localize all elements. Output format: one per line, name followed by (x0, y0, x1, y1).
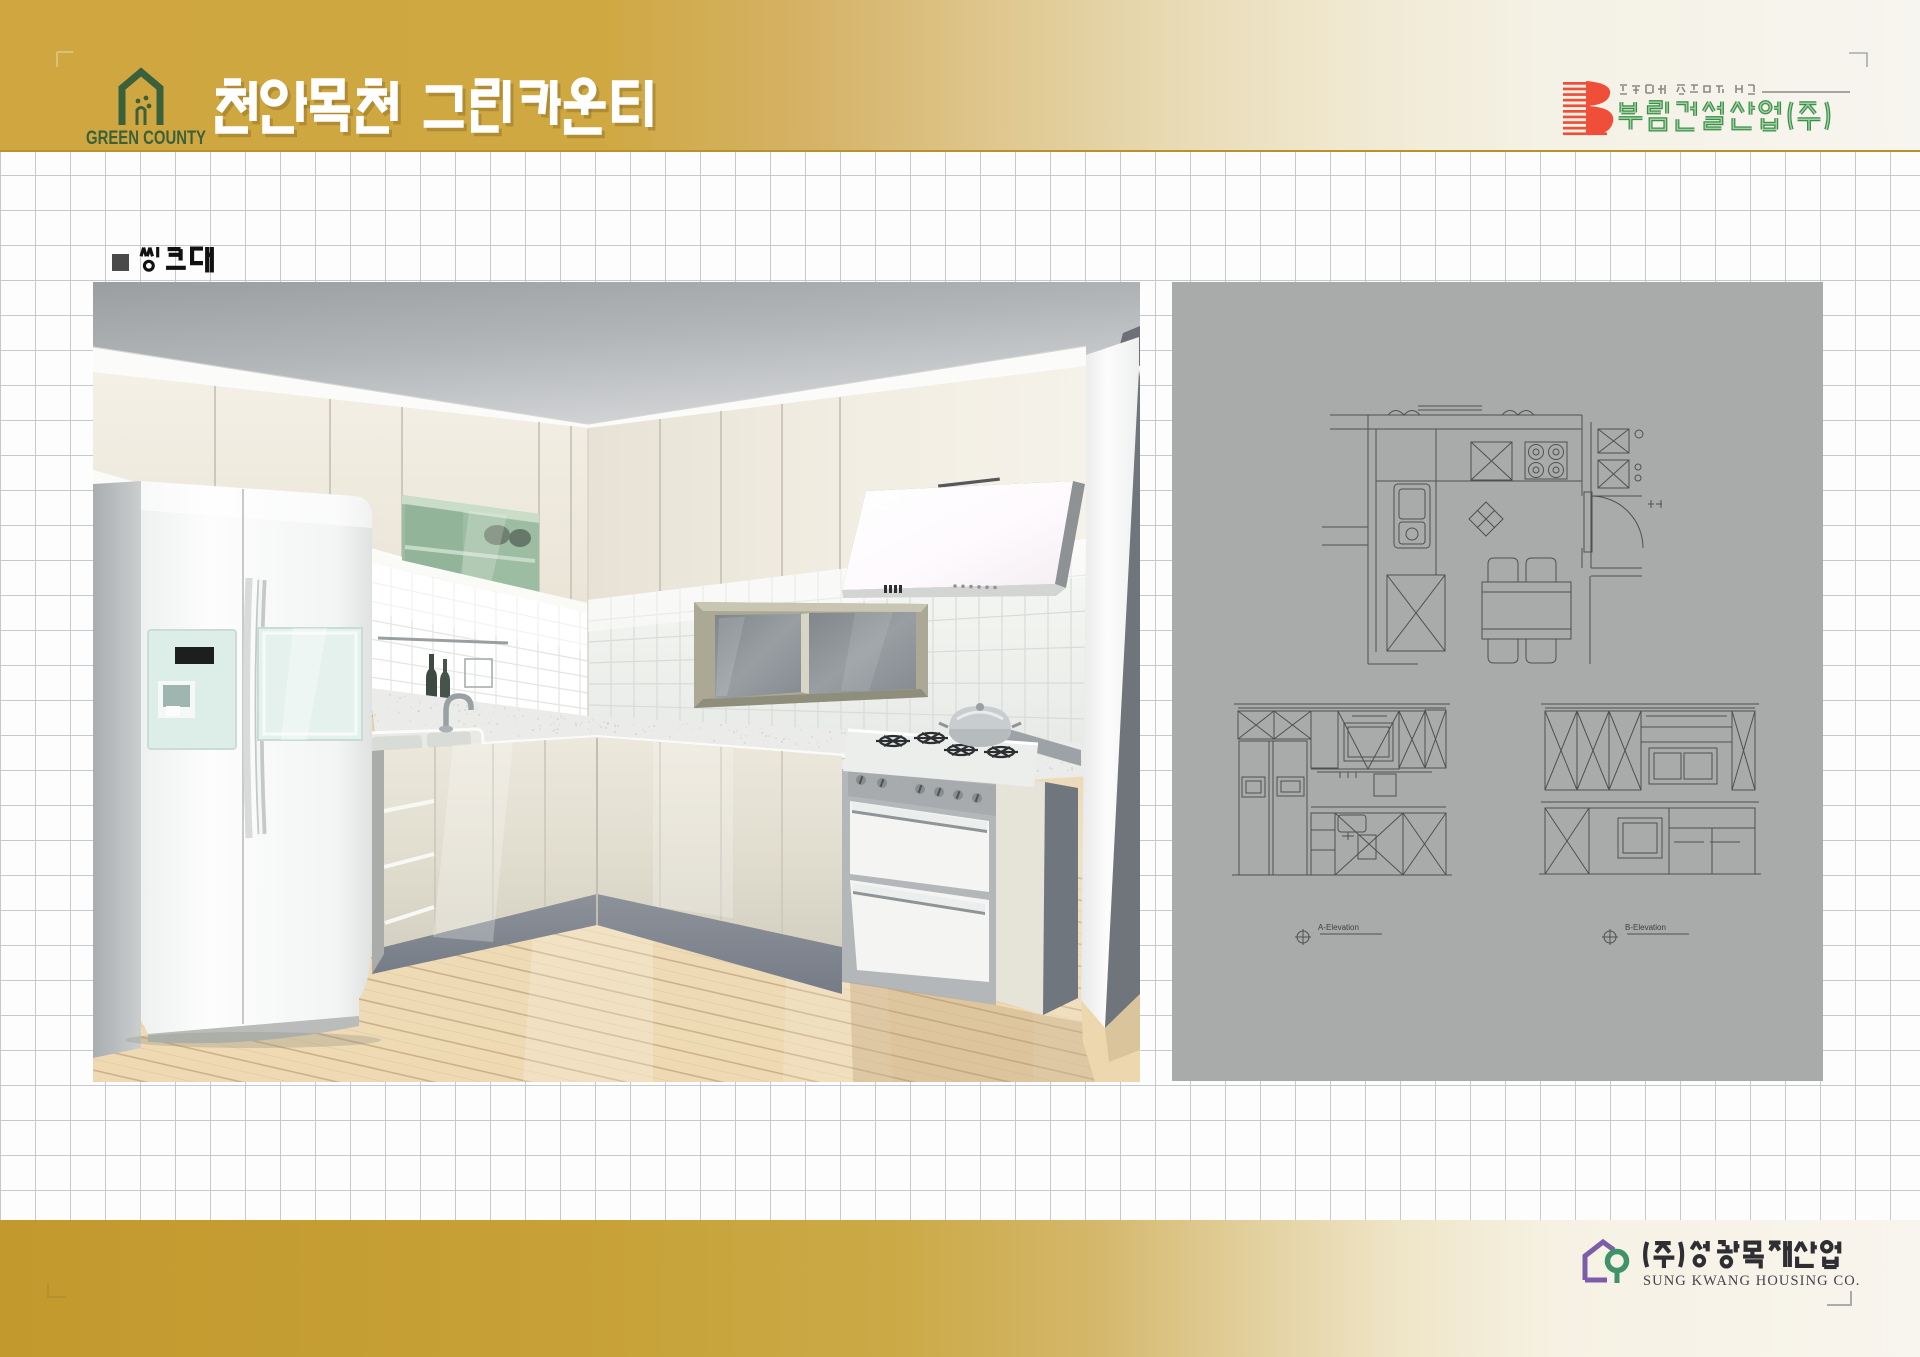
svg-text:B-Elevation: B-Elevation (1625, 923, 1666, 932)
svg-text:A-Elevation: A-Elevation (1318, 923, 1359, 932)
svg-text:GREEN COUNTY: GREEN COUNTY (86, 128, 206, 149)
